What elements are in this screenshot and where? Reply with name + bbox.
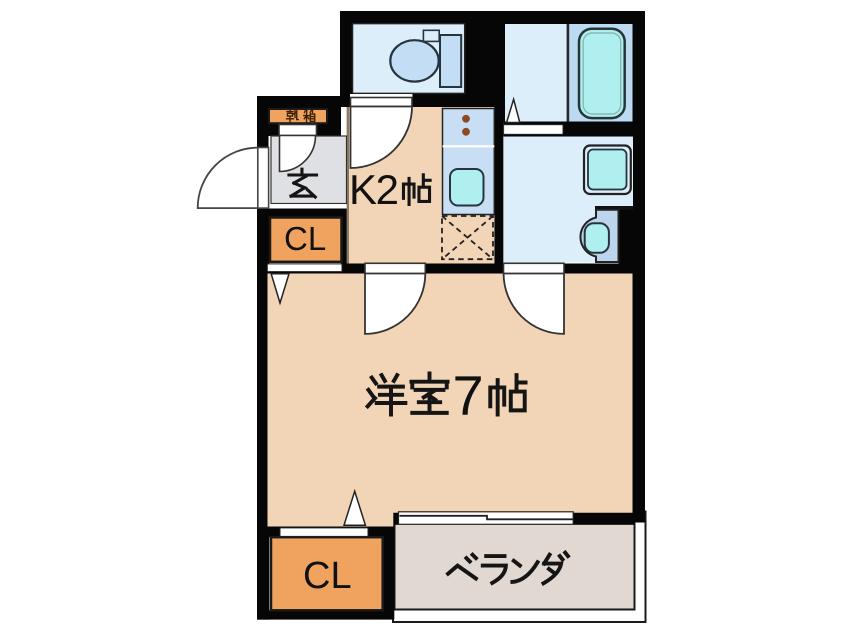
svg-text:CL: CL: [284, 220, 326, 257]
svg-text:K2: K2: [349, 166, 399, 213]
svg-text:CL: CL: [303, 555, 352, 597]
svg-text:7: 7: [453, 364, 484, 427]
